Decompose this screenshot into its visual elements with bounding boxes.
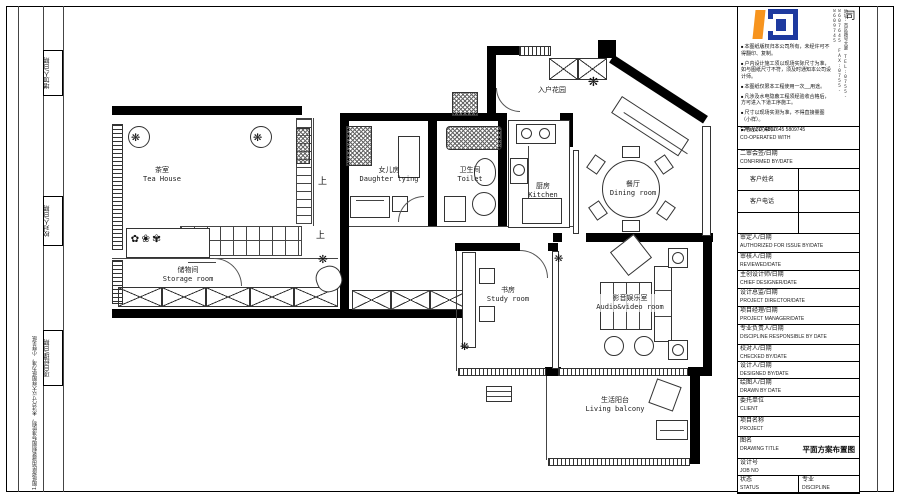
tb-row-checked: 校对人/日期 CHECKED BY/DATE [738, 345, 859, 362]
plant-icon: ❋ [318, 250, 328, 266]
thin-wall [573, 150, 579, 234]
room-label-daughter: 女儿房 Daughter lying [359, 166, 418, 184]
tb-row-reviewed: 审核人/日期 REVIEWED/DATE [738, 253, 859, 271]
logo-orange-bar [752, 10, 765, 39]
room-label-tea-house: 茶室 Tea House [143, 166, 181, 184]
tb-row-project-manager: 项目经理/日期 PROJECT MANAGER/DATE [738, 307, 859, 325]
wall [688, 367, 712, 376]
company-name-text: 欧碧雅建筑装饰有限公司 [843, 10, 860, 120]
room-cn: 卫生间 [457, 166, 482, 175]
room-cn: 储物间 [163, 266, 214, 275]
room-en: Tea House [143, 175, 181, 184]
tb-row-client-name: 客户姓名 [738, 169, 859, 191]
room-en: Dining room [610, 189, 656, 198]
room-label-av-room: 影音娱乐室 Audio&video room [596, 294, 663, 312]
storage-cabinet [162, 287, 206, 307]
row-en: DRAWN BY DATE [740, 388, 857, 394]
room-label-study: 书房 Study room [487, 286, 529, 304]
wall [586, 233, 713, 242]
cell-divider [798, 476, 799, 492]
room-label-kitchen: 厨房 Kitchen [528, 182, 558, 200]
margin-label-text: 项目经理/日期 [45, 339, 51, 377]
corridor-cabinet [352, 290, 391, 310]
study-left-line [456, 251, 457, 371]
row-cn: 二审会签/日期 [740, 151, 857, 159]
wall [112, 106, 302, 115]
sink-bowl [513, 164, 525, 176]
room-cn: 书房 [487, 286, 529, 295]
tb-row-client-blank [738, 213, 859, 234]
drawing-title-text: 平面方案布置图 [803, 445, 856, 454]
dining-chair [622, 220, 640, 232]
wall [428, 113, 437, 227]
margin-label-checked-by: 校对人/日期 [43, 196, 63, 246]
title-block: 本图纸版权归本公司所有，未经许可不得翻印、复制。 户内设计施工须以现场实际尺寸为… [737, 6, 860, 494]
company-box: 本图纸版权归本公司所有，未经许可不得翻印、复制。 户内设计施工须以现场实际尺寸为… [738, 7, 859, 127]
row-en: CONFIRMED BY/DATE [740, 159, 857, 165]
room-en: Audio&video room [596, 303, 663, 312]
wash-basin [472, 192, 496, 216]
drawing-title-value: 平面方案布置图 [803, 444, 856, 455]
sofa-line [655, 290, 671, 291]
tb-row-authorized: 审定人/日期 AUTHORIZED FOR ISSUE BY/DATE [738, 234, 859, 253]
logo-blue-inner [776, 19, 786, 31]
pouf [634, 336, 654, 356]
window [548, 458, 690, 466]
row-en: AUTHORIZED FOR ISSUE BY/DATE [740, 243, 857, 249]
room-cn: 餐厅 [610, 180, 656, 189]
balcony-left-line [546, 376, 547, 460]
tb-row-chief-designer: 主创设计师/日期 CHIEF DESIGNER/DATE [738, 271, 859, 289]
storage-cabinet [250, 287, 294, 307]
wall [455, 243, 520, 251]
balcony-cabinet-line [660, 430, 684, 431]
row-cn: 项目经理/日期 [740, 308, 857, 316]
logo-white-gap [766, 19, 775, 31]
room-cn: 茶室 [143, 166, 181, 175]
plant-icon: ❋ [588, 72, 599, 90]
corridor-cabinet [391, 290, 430, 310]
room-en: Daughter lying [359, 175, 418, 184]
row-en: DESIGNED BY/DATE [740, 371, 857, 377]
row-cn: 校对人/日期 [740, 346, 857, 354]
room-cn: 厨房 [528, 182, 558, 191]
left-column-line-b [63, 6, 64, 492]
tea-right-line [313, 118, 314, 226]
sofa-line [655, 316, 671, 317]
storage-top-line [112, 258, 338, 259]
row-cn: 委托单位 [740, 398, 857, 406]
margin-label-text: 增加人/日期 [45, 57, 51, 89]
dining-chair [622, 146, 640, 158]
plant-icon: ❋ [460, 338, 469, 353]
row-cn: 设计人/日期 [740, 363, 857, 371]
room-label-balcony: 生活阳台 Living balcony [585, 396, 644, 414]
row-en: CO-OPERATED WITH [740, 135, 857, 141]
tb-row-cooperated: 合作设计单位 CO-OPERATED WITH [738, 126, 859, 150]
room-cn: 生活阳台 [585, 396, 644, 405]
note-item: 本图纸版权归本公司所有，未经许可不得翻印、复制。 [741, 44, 831, 58]
tb-row-job-no: 设计号 JOB NO [738, 459, 859, 476]
up-text: 上 [318, 177, 327, 187]
wall [703, 240, 712, 375]
room-en: Toilet [457, 175, 482, 184]
study-chair [479, 268, 495, 284]
row-cn: 设计总监/日期 [740, 290, 857, 298]
bathtub [446, 126, 502, 150]
room-cn: 女儿房 [359, 166, 418, 175]
room-en: Storage room [163, 275, 214, 284]
row-en: REVIEWED/DATE [740, 262, 857, 268]
door-arrow-line [188, 262, 216, 263]
tb-row-discipline-responsible: 专业负责人/日期 DISCIPLINE RESPONSIBLE BY DATE [738, 325, 859, 345]
wardrobe [346, 126, 372, 166]
level-marker [486, 386, 512, 402]
wall [690, 376, 700, 464]
speaker-cone [672, 252, 684, 264]
cell-divider [798, 213, 799, 233]
study-chair [479, 306, 495, 322]
tb-row-confirmed: 二审会签/日期 CONFIRMED BY/DATE [738, 150, 859, 169]
room-label-entry-garden: 入户花园 [538, 86, 566, 95]
margin-vertical-note: 1.图纸按民用建筑制图标准绘制，未注尺寸以大样图纸为准，小样见纸 [31, 330, 38, 490]
room-en: Kitchen [528, 191, 558, 200]
tb-row-scale: 比例 [738, 493, 859, 494]
row-en: JOB NO [740, 468, 857, 474]
room-en: Study room [487, 295, 529, 304]
burner [539, 128, 550, 139]
row-cn: 主创设计师/日期 [740, 272, 857, 280]
plant-icon: ❋ [253, 129, 262, 144]
side-cabinet [296, 128, 310, 164]
tb-row-client-phone: 客户电话 [738, 191, 859, 213]
note-item: 尺寸以现场实测为准，不得直接量图（小样）。 [741, 110, 831, 124]
row-cn: 审核人/日期 [740, 254, 857, 262]
row-cn: 项目名称 [740, 418, 857, 426]
margin-label-text: 校对人/日期 [45, 205, 51, 237]
storage-cabinet [206, 287, 250, 307]
level-marker-line [487, 396, 511, 397]
window [519, 46, 551, 56]
wall [553, 233, 562, 242]
note-item: 本图纸仅限本工程使用一次__用途。 [741, 84, 831, 91]
tb-row-client: 委托单位 CLIENT [738, 397, 859, 417]
tb-row-drawn: 绘图人/日期 DRAWN BY DATE [738, 379, 859, 397]
up-text: 上 [316, 231, 325, 241]
row-en: PROJECT MANAGER/DATE [740, 316, 857, 322]
window [458, 368, 546, 376]
room-en: Living balcony [585, 405, 644, 414]
speaker-cone [672, 344, 684, 356]
cad-sheet: 增加人/日期 校对人/日期 项目经理/日期 1.图纸按民用建筑制图标准绘制，未注… [0, 0, 900, 500]
row-cn: 专业 [802, 477, 830, 485]
wall [349, 113, 501, 121]
row-en: CLIENT [740, 406, 857, 412]
tb-row-drawing-title: 图名 DRAWING TITLE 平面方案布置图 [738, 437, 859, 459]
room-label-toilet: 卫生间 Toilet [457, 166, 482, 184]
cell-divider [798, 169, 799, 190]
window [112, 124, 123, 250]
tb-row-project: 项目名称 PROJECT [738, 417, 859, 437]
room-label-dining: 餐厅 Dining room [610, 180, 656, 198]
stair-up-label: 上 [316, 228, 325, 241]
bath-cabinet [444, 196, 466, 222]
row-cn: 绘图人/日期 [740, 380, 857, 388]
row-en: DISCIPLINE [802, 485, 830, 491]
company-name-vertical: 欧碧雅建筑装饰有限公司 [841, 10, 860, 124]
flowers-icon: ✿❀✾ [131, 232, 163, 245]
row-cn: 设计号 [740, 460, 857, 468]
margin-label-project-manager: 项目经理/日期 [43, 330, 63, 386]
burner [521, 128, 532, 139]
thin-wall [552, 251, 559, 369]
row-cn: 专业负责人/日期 [740, 326, 857, 334]
row-cn: 审定人/日期 [740, 235, 857, 243]
plant-icon: ❋ [131, 129, 140, 144]
level-marker-line [487, 391, 511, 392]
room-label-storage: 储物间 Storage room [163, 266, 214, 284]
note-item: 凡涉及水电隐蔽工程须经验收合格后，方可进入下道工序施工。 [741, 94, 831, 108]
plant-icon: ❋ [554, 250, 563, 265]
thin-wall [702, 126, 711, 236]
row-en: PROJECT [740, 426, 857, 432]
row-en: CHIEF DESIGNER/DATE [740, 280, 857, 286]
equipment-box [452, 92, 478, 116]
stair-up-label: 上 [318, 174, 327, 187]
room-cn: 入户花园 [538, 86, 566, 95]
room-cn: 影音娱乐室 [596, 294, 663, 303]
study-desk [462, 252, 476, 348]
window [558, 368, 688, 376]
row-cn: 合作设计单位 [740, 127, 857, 135]
margin-label-added-by: 增加人/日期 [43, 50, 63, 96]
bed-line [356, 200, 384, 201]
row-en: CHECKED BY/DATE [740, 354, 857, 360]
row-en: DISCIPLINE RESPONSIBLE BY DATE [740, 334, 857, 340]
note-item: 户内设计施工须以现场实际尺寸为准，如与图纸尺寸不符，须及时通知本公司设计师。 [741, 61, 831, 81]
pouf [604, 336, 624, 356]
fridge [522, 198, 562, 224]
margin-note-text: 1.图纸按民用建筑制图标准绘制，未注尺寸以大样图纸为准，小样见纸 [32, 336, 38, 490]
row-en: PROJECT DIRECTOR/DATE [740, 298, 857, 304]
wall [112, 309, 470, 318]
tb-row-designed: 设计人/日期 DESIGNED BY/DATE [738, 362, 859, 379]
discipline-cell: 专业 DISCIPLINE [802, 477, 830, 491]
cell-divider [798, 191, 799, 212]
storage-cabinet [118, 287, 162, 307]
wall [487, 46, 519, 55]
wall [487, 46, 496, 118]
company-logo [752, 8, 800, 42]
left-margin-line [18, 6, 19, 492]
shoe-cabinet [549, 58, 578, 80]
tb-row-project-director: 设计总监/日期 PROJECT DIRECTOR/DATE [738, 289, 859, 307]
right-margin-line [877, 6, 878, 492]
company-notes: 本图纸版权归本公司所有，未经许可不得翻印、复制。 户内设计施工须以现场实际尺寸为… [741, 44, 831, 136]
tb-row-status-discipline: 状态 STATUS 专业 DISCIPLINE [738, 476, 859, 493]
